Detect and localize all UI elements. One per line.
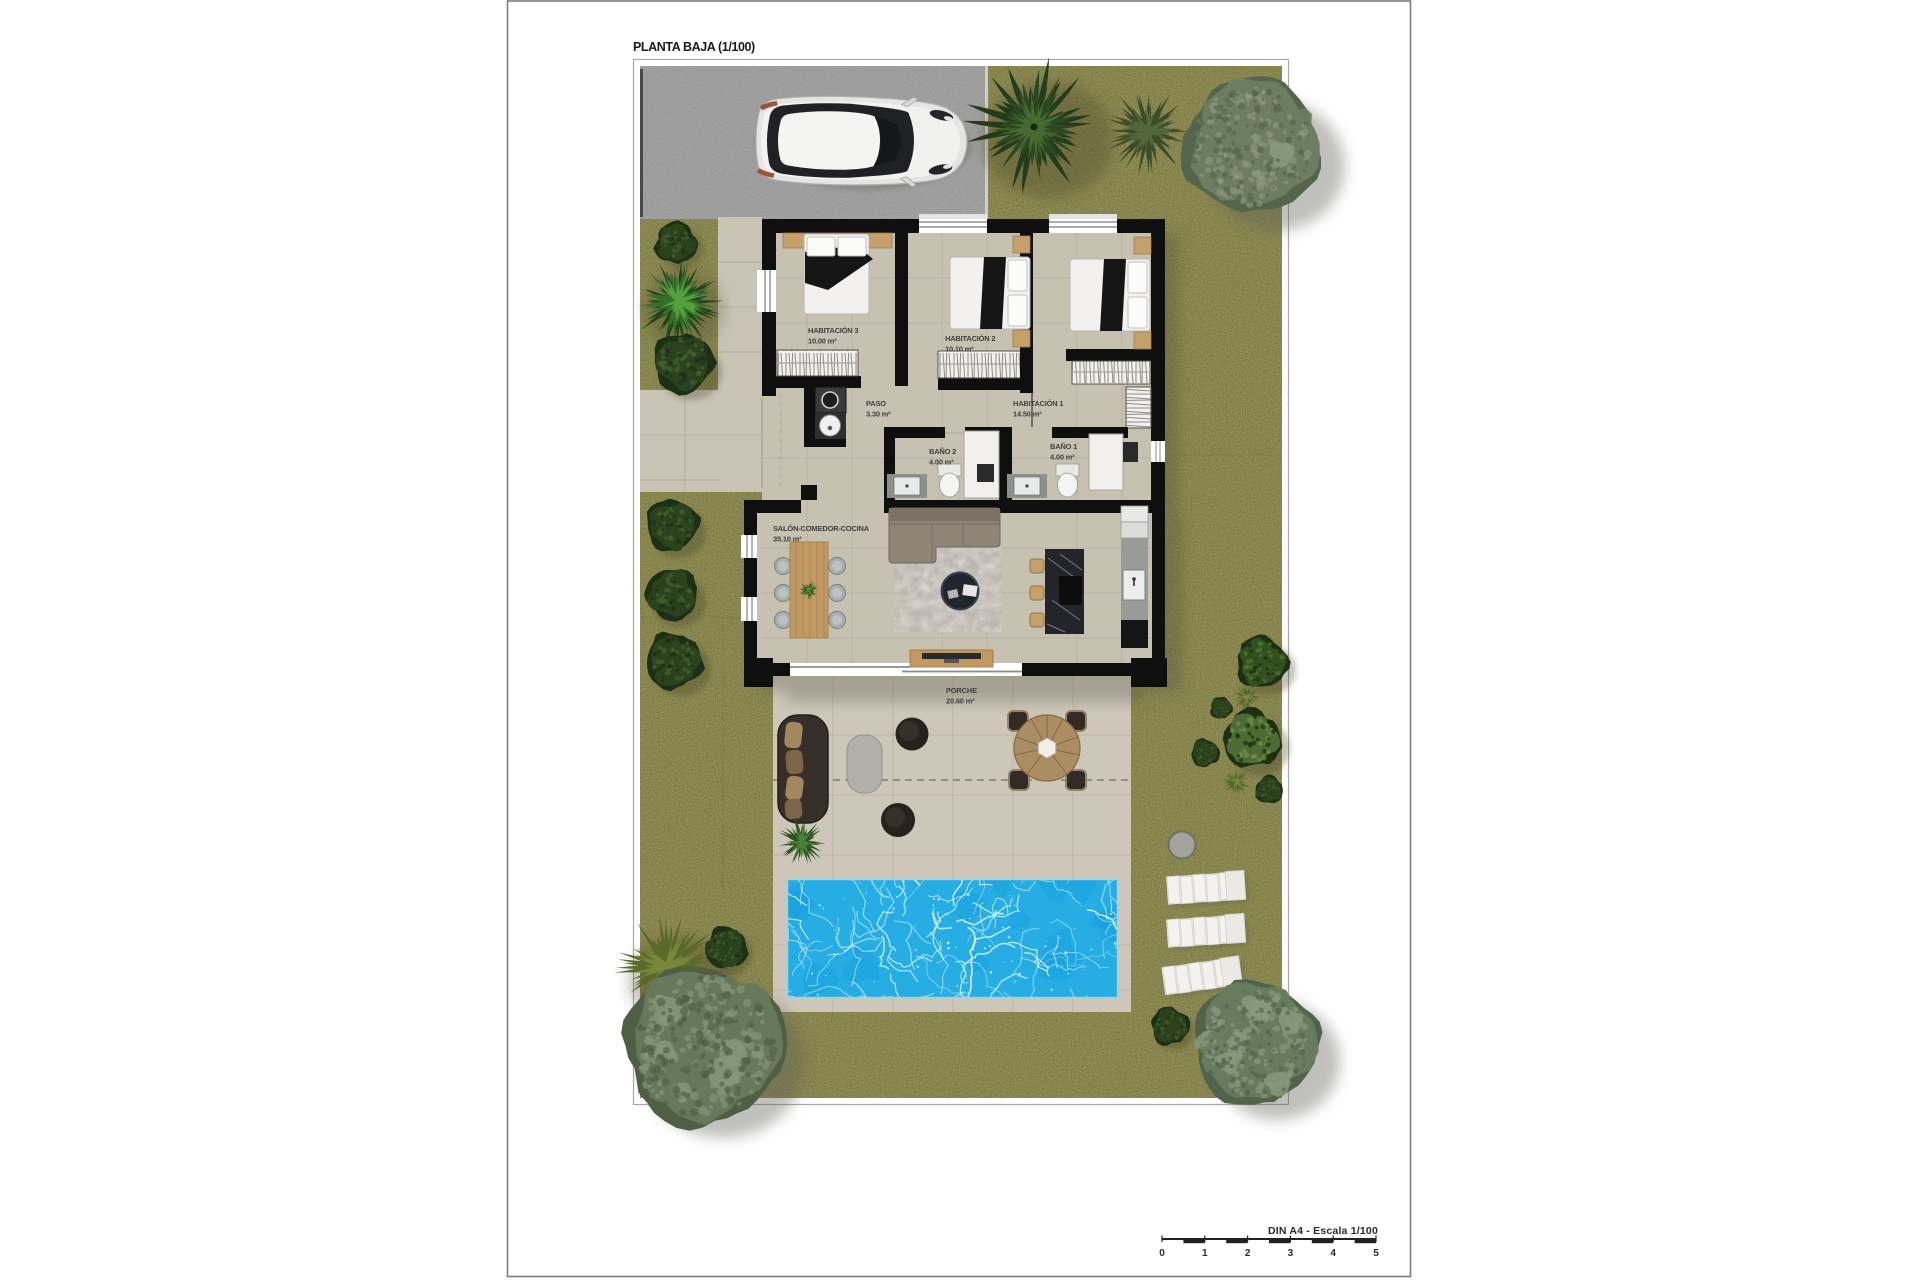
svg-text:4.00 m²: 4.00 m² <box>1050 453 1075 462</box>
svg-text:14.50 m²: 14.50 m² <box>1013 410 1042 419</box>
svg-text:SALÓN-COMEDOR-COCINA: SALÓN-COMEDOR-COCINA <box>773 524 870 533</box>
svg-text:5: 5 <box>1373 1248 1379 1259</box>
svg-text:2: 2 <box>1245 1248 1251 1259</box>
svg-text:BAÑO 2: BAÑO 2 <box>929 447 956 456</box>
svg-text:0: 0 <box>1159 1248 1165 1259</box>
svg-text:4.00 m²: 4.00 m² <box>929 458 954 467</box>
svg-text:PLANTA BAJA (1/100): PLANTA BAJA (1/100) <box>633 40 755 54</box>
svg-text:10.10 m²: 10.10 m² <box>945 345 974 354</box>
svg-text:PORCHE: PORCHE <box>946 686 977 695</box>
svg-text:4: 4 <box>1330 1248 1336 1259</box>
svg-text:3.30 m²: 3.30 m² <box>866 410 891 419</box>
svg-text:HABITACIÓN 1: HABITACIÓN 1 <box>1013 399 1063 408</box>
svg-text:PASO: PASO <box>866 399 886 408</box>
svg-text:HABITACIÓN 3: HABITACIÓN 3 <box>808 326 858 335</box>
svg-text:10.00 m²: 10.00 m² <box>808 337 837 346</box>
svg-text:20.60 m²: 20.60 m² <box>946 697 975 706</box>
svg-text:BAÑO 1: BAÑO 1 <box>1050 442 1077 451</box>
svg-text:3: 3 <box>1288 1248 1294 1259</box>
svg-text:HABITACIÓN 2: HABITACIÓN 2 <box>945 334 995 343</box>
svg-text:1: 1 <box>1202 1248 1208 1259</box>
svg-text:DIN A4 - Escala 1/100: DIN A4 - Escala 1/100 <box>1268 1225 1378 1237</box>
